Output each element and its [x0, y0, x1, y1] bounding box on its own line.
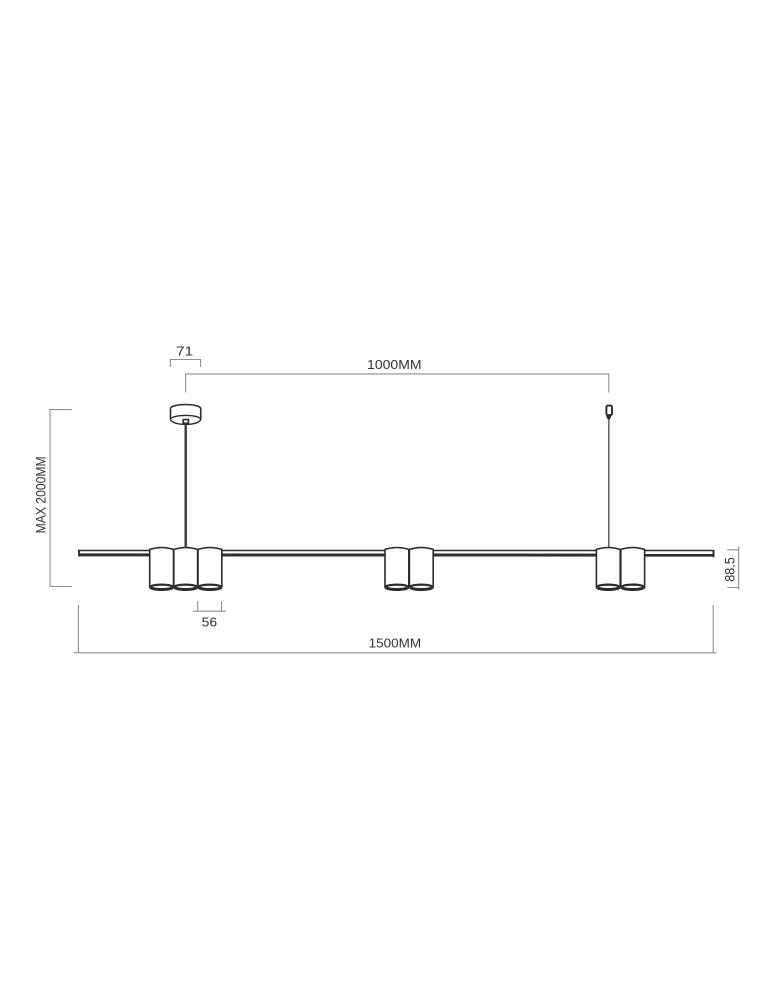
svg-text:71: 71	[176, 344, 193, 359]
svg-text:88.5: 88.5	[723, 557, 738, 582]
svg-text:1500MM: 1500MM	[369, 635, 422, 650]
svg-text:56: 56	[202, 615, 218, 630]
svg-text:MAX 2000MM: MAX 2000MM	[33, 456, 48, 533]
svg-text:1000MM: 1000MM	[367, 357, 422, 372]
